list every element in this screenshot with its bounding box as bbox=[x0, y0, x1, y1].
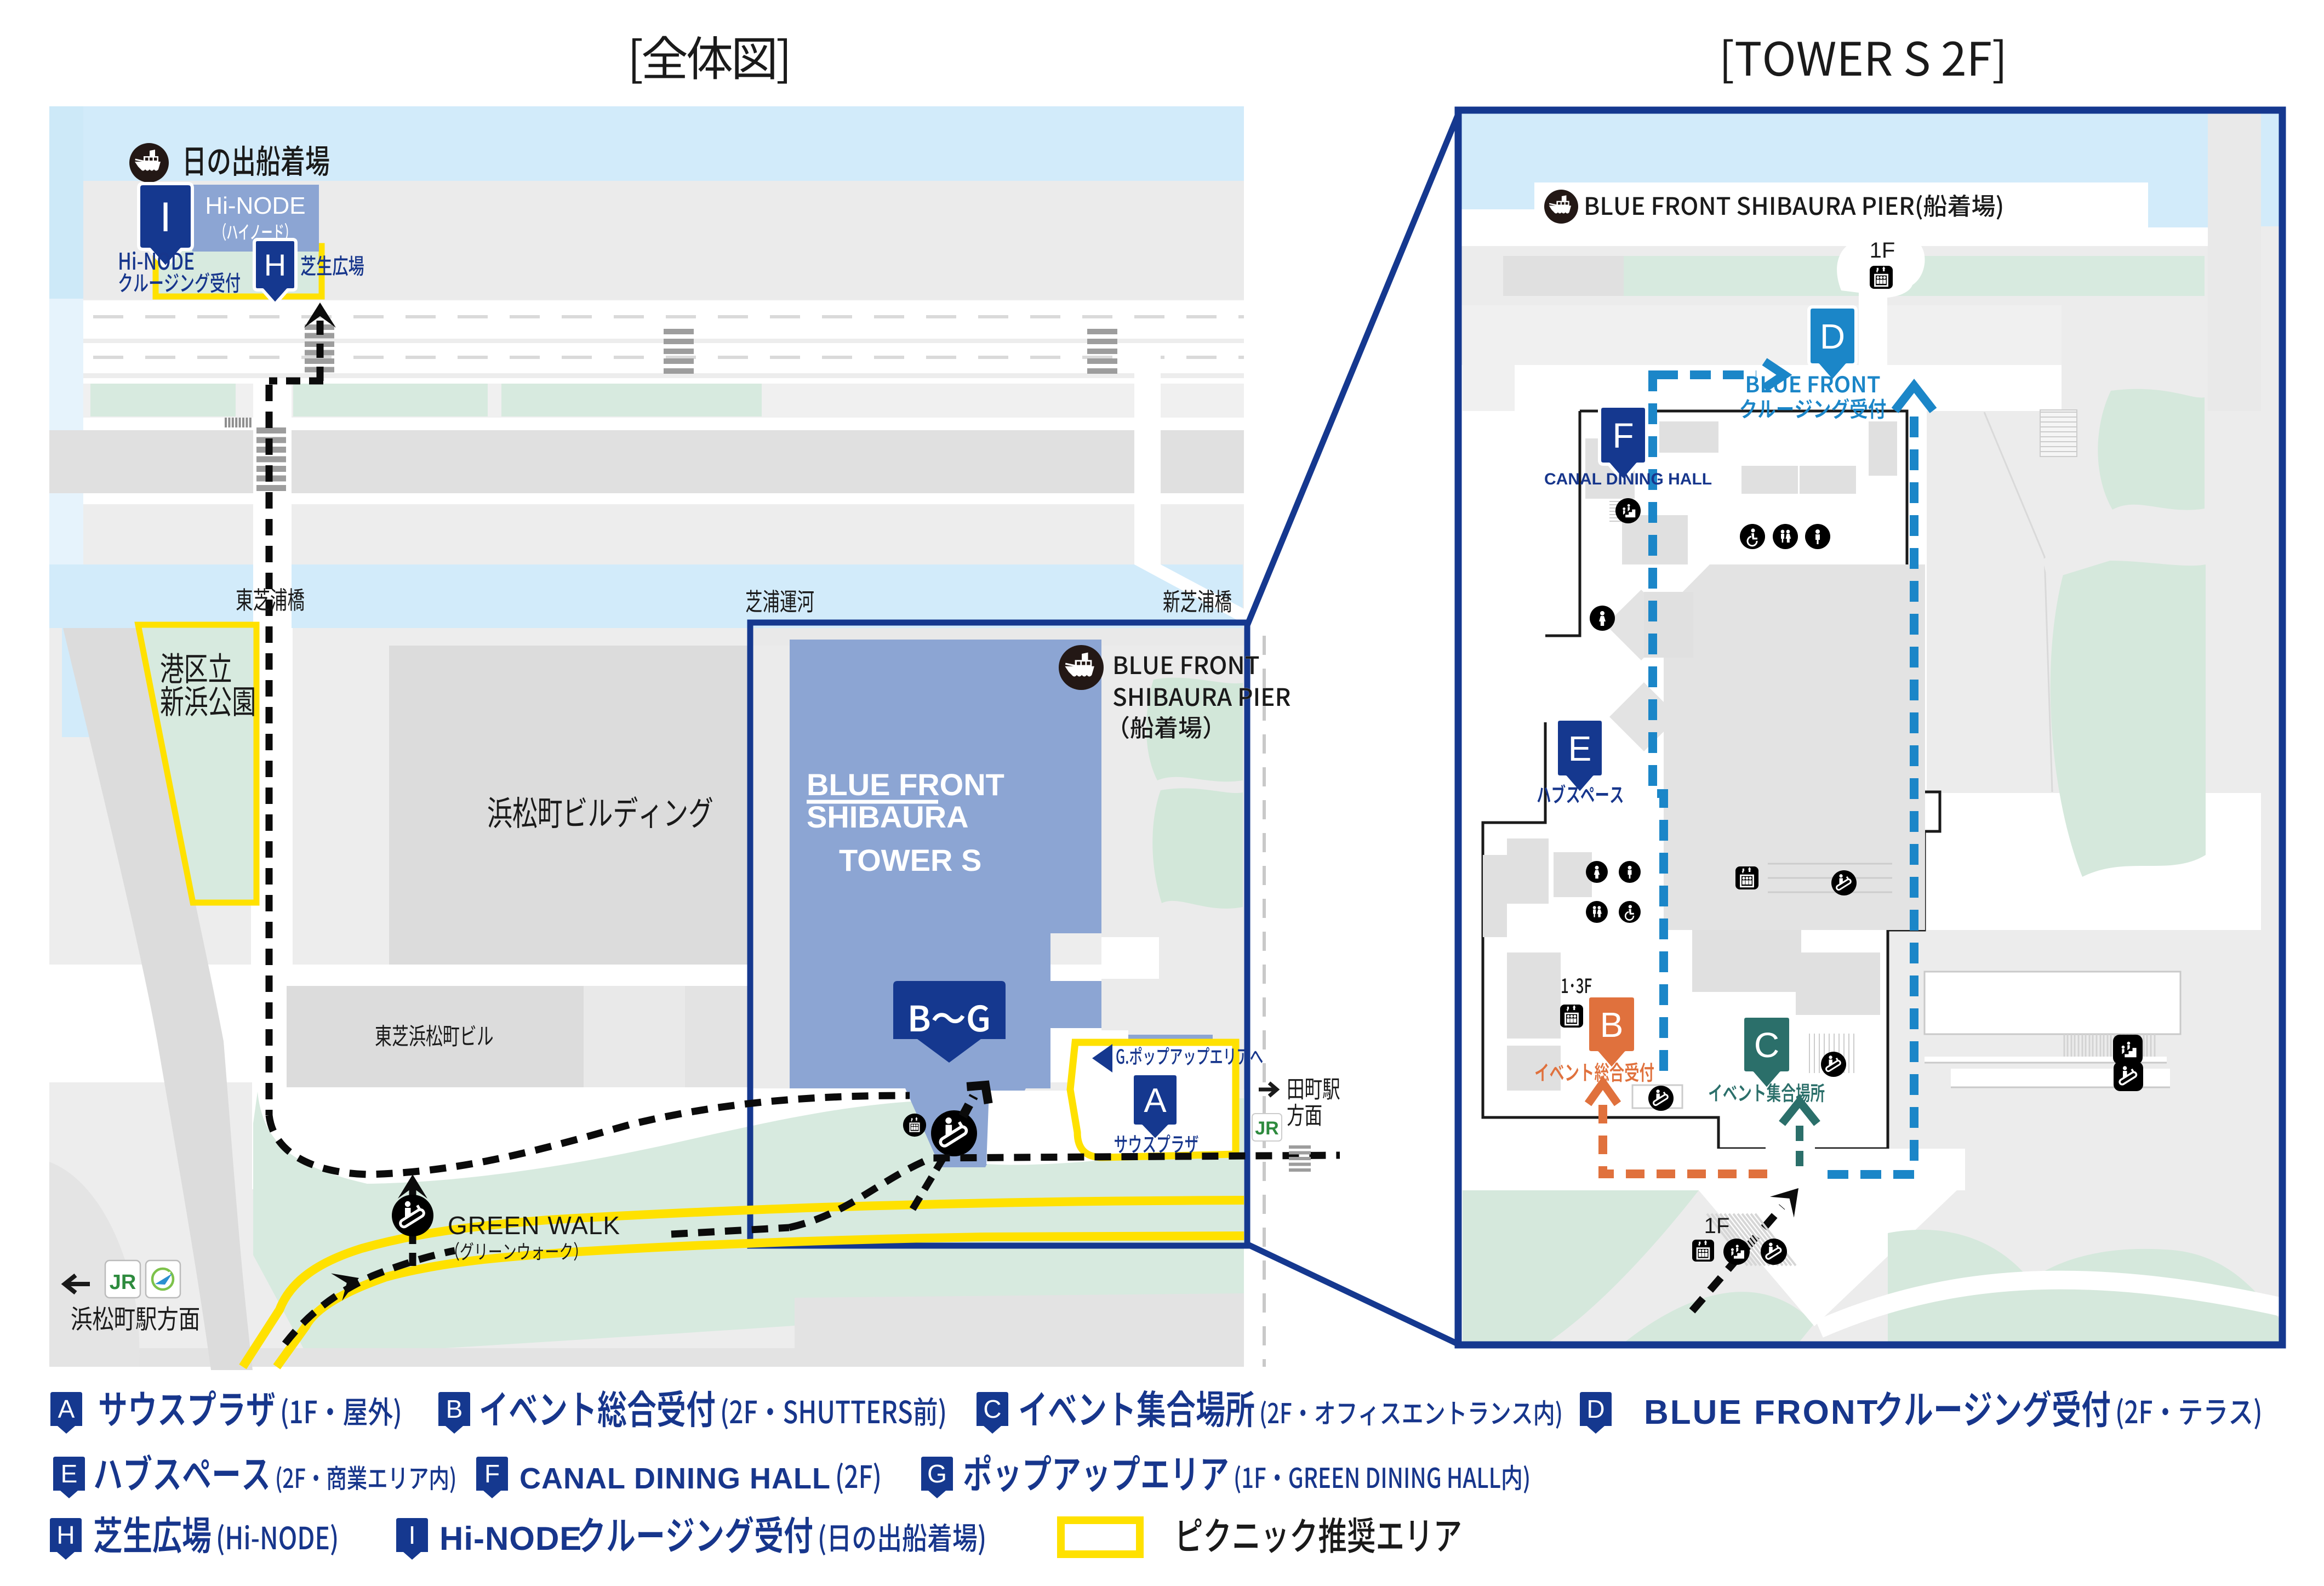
svg-text:BLUE FRONT: BLUE FRONT bbox=[807, 767, 1004, 802]
svg-text:1F: 1F bbox=[1704, 1214, 1730, 1238]
svg-text:CANAL DINING HALL: CANAL DINING HALL bbox=[519, 1462, 831, 1495]
svg-text:Hi-NODE: Hi-NODE bbox=[205, 192, 305, 219]
svg-text:1F: 1F bbox=[1870, 238, 1895, 263]
svg-text:H: H bbox=[264, 248, 286, 282]
svg-text:D: D bbox=[1820, 317, 1845, 356]
svg-text:C: C bbox=[1754, 1025, 1779, 1065]
svg-text:F: F bbox=[1612, 416, 1634, 455]
svg-text:B: B bbox=[446, 1395, 463, 1423]
svg-text:BLUE FRONT: BLUE FRONT bbox=[1644, 1394, 1880, 1431]
svg-text:E: E bbox=[61, 1459, 78, 1488]
svg-text:I: I bbox=[159, 194, 171, 241]
svg-text:GREEN WALK: GREEN WALK bbox=[448, 1211, 620, 1240]
svg-text:F: F bbox=[484, 1459, 500, 1488]
svg-text:A: A bbox=[58, 1395, 75, 1423]
svg-text:CANAL DINING HALL: CANAL DINING HALL bbox=[1544, 470, 1712, 488]
svg-text:C: C bbox=[983, 1395, 1001, 1423]
svg-text:E: E bbox=[1568, 729, 1592, 768]
svg-text:H: H bbox=[56, 1521, 75, 1549]
svg-text:G: G bbox=[927, 1459, 947, 1488]
svg-text:TOWER S: TOWER S bbox=[839, 843, 981, 877]
svg-text:I: I bbox=[409, 1521, 416, 1549]
svg-text:Hi-NODE: Hi-NODE bbox=[439, 1520, 582, 1557]
svg-text:SHIBAURA: SHIBAURA bbox=[807, 800, 969, 834]
svg-text:JR: JR bbox=[1255, 1118, 1278, 1139]
svg-text:JR: JR bbox=[110, 1271, 136, 1294]
svg-text:A: A bbox=[1144, 1082, 1167, 1120]
svg-text:B: B bbox=[1600, 1005, 1624, 1045]
svg-text:D: D bbox=[1586, 1395, 1604, 1423]
